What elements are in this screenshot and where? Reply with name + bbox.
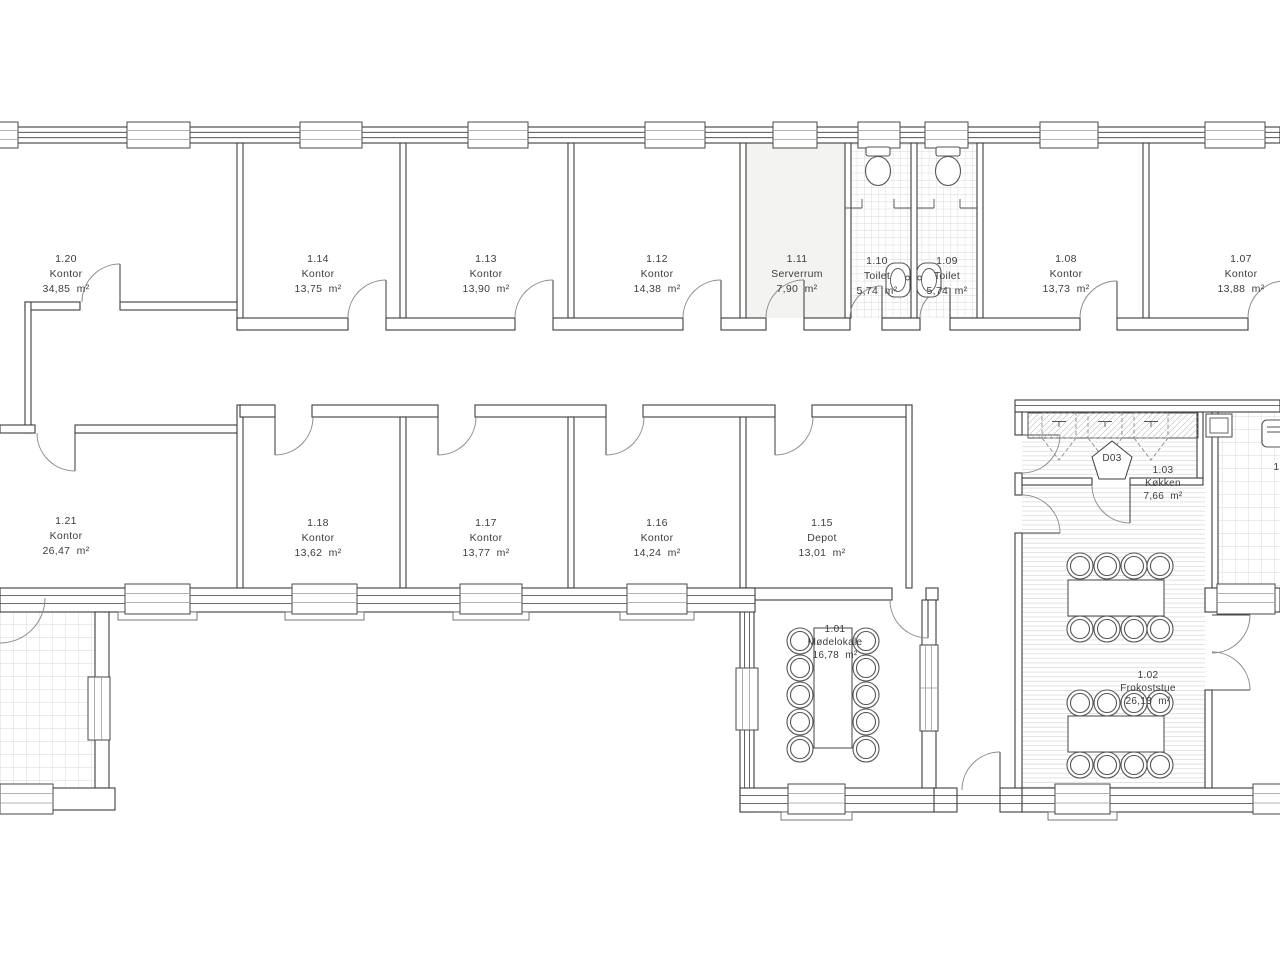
chair-icon	[1067, 752, 1093, 778]
chair-icon	[1094, 616, 1120, 642]
shaft-box	[1206, 414, 1232, 437]
bottom-left-room-floor	[0, 612, 95, 788]
room-label-1-01: 1.01Mødelokale16,78 m²	[808, 597, 863, 675]
room-label-1-02: 1.02Frokoststue26,13 m²	[1120, 643, 1176, 721]
chair-icon	[1147, 553, 1173, 579]
chair-icon	[853, 736, 879, 762]
room-label-1-10: 1.10Toilet5,74 m²	[857, 224, 898, 314]
room-label-1-11: 1.11Serverrum7,90 m²	[771, 222, 823, 312]
room-label-1-20: 1.20Kontor34,85 m²	[42, 222, 89, 312]
toilet-icon	[936, 147, 961, 186]
room-label-1-17: 1.17Kontor13,77 m²	[462, 486, 509, 576]
door-tag-label: D03	[1102, 453, 1121, 464]
dining-table	[1068, 580, 1164, 616]
room-label-1-21: 1.21Kontor26,47 m²	[42, 484, 89, 574]
chair-icon	[1147, 616, 1173, 642]
chair-icon	[853, 709, 879, 735]
room-label-1-18: 1.18Kontor13,62 m²	[294, 486, 341, 576]
chair-icon	[1067, 690, 1093, 716]
room-label-partial-right: 1.	[1274, 461, 1280, 474]
room-label-1-12: 1.12Kontor14,38 m²	[633, 222, 680, 312]
floor-plan-page: 1.20Kontor34,85 m² 1.14Kontor13,75 m² 1.…	[0, 0, 1280, 960]
room-label-1-16: 1.16Kontor14,24 m²	[633, 486, 680, 576]
appliance-icon	[1262, 420, 1280, 447]
chair-icon	[787, 709, 813, 735]
window	[1217, 584, 1275, 614]
chair-icon	[1094, 752, 1120, 778]
chair-icon	[787, 736, 813, 762]
chair-icon	[1121, 616, 1147, 642]
room-label-1-08: 1.08Kontor13,73 m²	[1042, 222, 1089, 312]
chair-icon	[1147, 752, 1173, 778]
room-label-1-14: 1.14Kontor13,75 m²	[294, 222, 341, 312]
room-label-1-15: 1.15Depot13,01 m²	[798, 486, 845, 576]
chair-icon	[1067, 553, 1093, 579]
toilet-icon	[866, 147, 891, 186]
chair-icon	[1094, 553, 1120, 579]
chair-icon	[787, 682, 813, 708]
chair-icon	[1121, 752, 1147, 778]
dining-table	[1068, 716, 1164, 752]
room-label-1-03: 1.03Køkken7,66 m²	[1143, 438, 1182, 516]
chair-icon	[1121, 553, 1147, 579]
room-label-1-13: 1.13Kontor13,90 m²	[462, 222, 509, 312]
chair-icon	[1067, 616, 1093, 642]
chair-icon	[853, 682, 879, 708]
room-label-1-09: 1.09Toilet5,74 m²	[927, 224, 968, 314]
chair-icon	[1094, 690, 1120, 716]
floor-plan-svg	[0, 0, 1280, 960]
room-label-1-07: 1.07Kontor13,88 m²	[1217, 222, 1264, 312]
